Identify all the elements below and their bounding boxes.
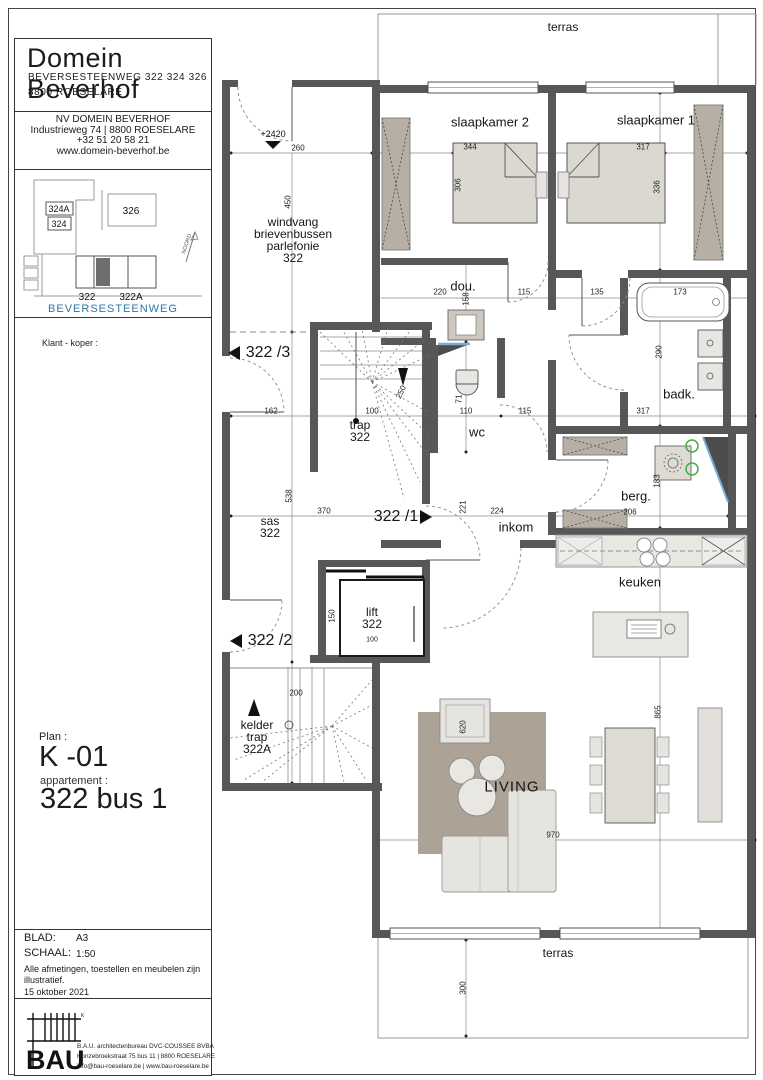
dim-berg-h: 183 xyxy=(653,474,662,487)
dim-wc-w: 110 xyxy=(460,407,473,416)
washbasins-icon xyxy=(698,330,723,390)
unit-322-1-arrow-icon xyxy=(420,510,432,524)
dim-wc-h: 71 xyxy=(455,395,464,404)
kitchen-counter xyxy=(556,535,747,567)
room-living-label: LIVING xyxy=(484,779,539,796)
dim-lift-h: 150 xyxy=(328,609,337,622)
dim-bed1-w: 317 xyxy=(636,143,649,152)
room-slaapkamer2-label: slaapkamer 2 xyxy=(451,115,529,130)
dim-berg-w: 206 xyxy=(623,508,636,517)
floor-plan-drawing xyxy=(0,0,763,1080)
dim-inkom-w: 224 xyxy=(490,507,503,516)
cellar-stair-arrow-icon xyxy=(248,699,260,716)
room-slaapkamer1-label: slaapkamer 1 xyxy=(617,113,695,128)
dim-chair: 620 xyxy=(459,720,468,733)
dim-wc-door: 115 xyxy=(519,407,532,416)
dim-kelder-w: 200 xyxy=(289,689,302,698)
unit-tag-322-2: 322 /2 xyxy=(248,632,292,650)
room-trap-line2: 322 xyxy=(350,431,370,443)
dim-table-h: 865 xyxy=(654,705,663,718)
room-badk-label: badk. xyxy=(663,387,695,402)
room-berg-label: berg. xyxy=(621,489,651,504)
room-inkom-label: inkom xyxy=(499,520,534,535)
dim-terras-d: 300 xyxy=(459,981,468,994)
dim-dou-door: 115 xyxy=(518,288,531,297)
dim-sas-w: 370 xyxy=(317,507,330,516)
dim-bed1-h: 336 xyxy=(653,180,662,193)
dim-trap-w: 100 xyxy=(365,407,378,416)
level-marker-icon xyxy=(265,141,281,149)
room-wc-label: wc xyxy=(469,425,485,440)
lift-dim-label: 100 xyxy=(366,637,378,644)
bed-slaapkamer2 xyxy=(453,143,537,223)
kitchen-island xyxy=(593,612,688,657)
level-marker-label: +2420 xyxy=(260,129,285,139)
room-dou-label: dou. xyxy=(450,279,475,294)
unit-tag-322-3: 322 /3 xyxy=(246,344,290,362)
dim-sk1-door: 135 xyxy=(590,288,603,297)
bed-slaapkamer1 xyxy=(567,143,665,223)
dim-bed2-h: 306 xyxy=(454,178,463,191)
dim-dou-h: 158 xyxy=(462,292,471,305)
dim-windvang-w: 260 xyxy=(291,144,304,153)
dim-bed2-w: 344 xyxy=(463,143,476,152)
room-lift-line2: 322 xyxy=(362,618,382,630)
dim-dou-w: 220 xyxy=(433,288,446,297)
unit-322-2-arrow-icon xyxy=(230,634,242,648)
drawing-sheet: Domein Beverhof BEVERSESTEENWEG 322 324 … xyxy=(0,0,763,1080)
toilet-icon xyxy=(456,370,478,395)
room-sas-line2: 322 xyxy=(260,527,280,539)
sideboard-icon xyxy=(698,708,722,822)
dim-windvang-h: 450 xyxy=(284,195,293,208)
dim-sas-h: 538 xyxy=(285,489,294,502)
dining-set-icon xyxy=(590,728,669,823)
room-kelder-line3: 322A xyxy=(243,743,271,755)
room-keuken-label: keuken xyxy=(619,575,661,590)
unit-tag-322-1: 322 /1 xyxy=(374,508,418,526)
vanity-icon xyxy=(438,344,470,356)
terrace-top-label: terras xyxy=(548,21,579,33)
room-windvang-line4: 322 xyxy=(283,252,303,264)
dim-hall-l: 162 xyxy=(264,407,277,416)
dim-tub: 173 xyxy=(673,288,686,297)
dim-badk-w: 317 xyxy=(636,407,649,416)
dim-badk-h: 290 xyxy=(655,345,664,358)
dim-living-w: 970 xyxy=(546,831,559,840)
dim-inkom-h: 221 xyxy=(459,500,468,513)
shower-icon xyxy=(448,310,484,340)
duct-shaft-icon xyxy=(703,437,728,502)
terrace-bottom-label: terras xyxy=(543,947,574,959)
